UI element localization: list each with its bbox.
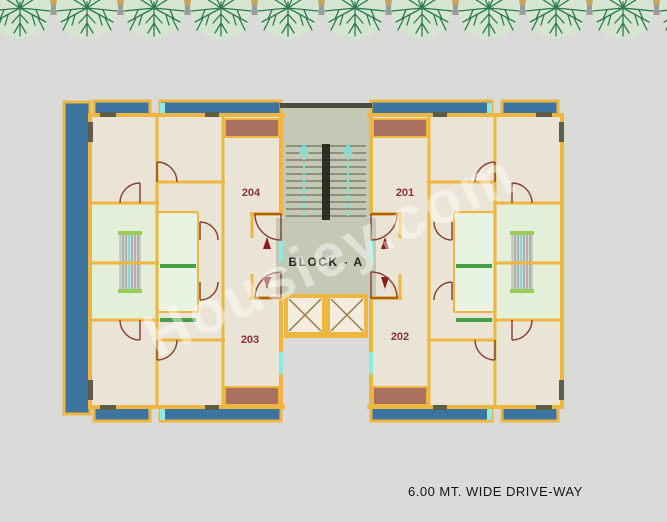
floor-plan-canvas: 204 201 203 202 BLOCK - A 6.00 MT. WIDE … [0,0,667,522]
unit-label-202: 202 [391,331,409,343]
unit-label-201: 201 [396,187,414,199]
unit-label-203: 203 [241,334,259,346]
core-top-edge [280,103,372,108]
driveway-label: 6.00 MT. WIDE DRIVE-WAY [408,484,583,499]
unit-label-204: 204 [242,187,261,199]
site-plan-page: 204 201 203 202 BLOCK - A 6.00 MT. WIDE … [0,0,667,522]
lifts [284,296,368,336]
block-label: BLOCK - A [288,255,363,269]
